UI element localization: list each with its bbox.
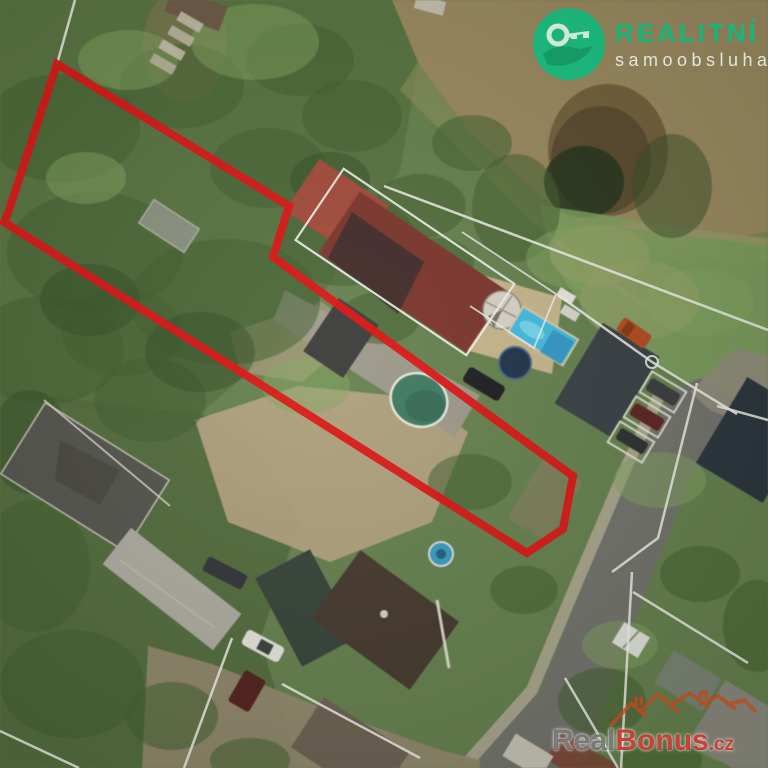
cadastral-line bbox=[0, 731, 79, 768]
watermark: RealBonus.cz bbox=[552, 724, 734, 758]
watermark-roofs-icon bbox=[608, 688, 758, 732]
cadastral-house-outline bbox=[296, 169, 515, 355]
brand-subtitle: samoobsluha bbox=[615, 50, 768, 71]
cadastral-line bbox=[282, 684, 420, 758]
cadastral-line bbox=[717, 406, 768, 420]
watermark-text-cz: .cz bbox=[709, 734, 734, 755]
cadastral-yard-outline bbox=[462, 232, 556, 348]
cadastral-line bbox=[633, 592, 748, 663]
cadastral-line bbox=[184, 638, 232, 768]
brand-logo: REALITNÍ samoobsluha bbox=[533, 8, 768, 80]
brand-name: REALITNÍ bbox=[615, 20, 768, 47]
cadastral-line bbox=[558, 295, 737, 414]
watermark-text-real: Real bbox=[552, 724, 615, 757]
property-boundary-outline bbox=[4, 64, 573, 553]
cadastral-line bbox=[612, 383, 697, 572]
cadastral-line bbox=[57, 0, 75, 64]
brand-text: REALITNÍ samoobsluha bbox=[615, 8, 768, 71]
aerial-photo: REALITNÍ samoobsluha RealBonus.cz bbox=[0, 0, 768, 768]
cadastral-overlay-svg bbox=[0, 0, 768, 768]
barn-edge-highlight bbox=[44, 400, 170, 506]
key-in-hand-icon bbox=[533, 8, 605, 80]
